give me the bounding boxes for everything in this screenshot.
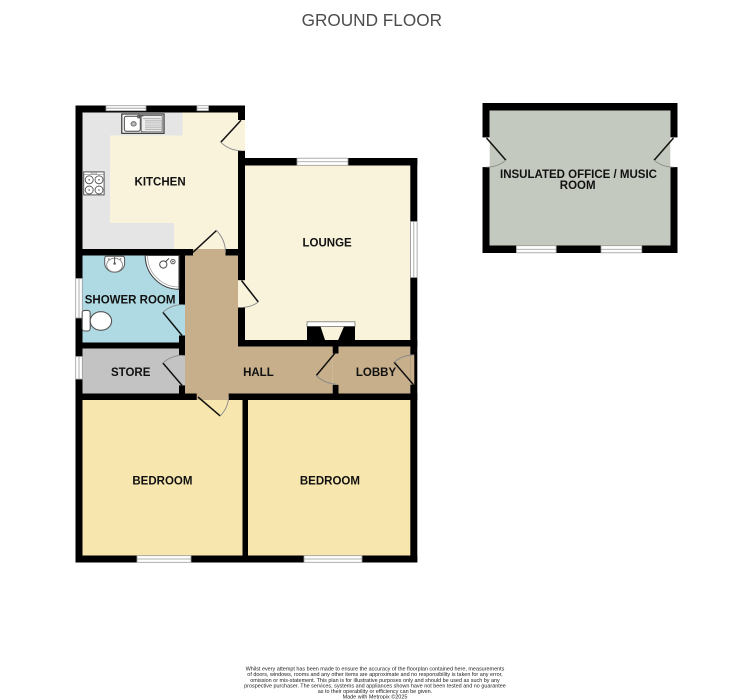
svg-text:ROOM: ROOM (560, 180, 596, 192)
svg-text:BEDROOM: BEDROOM (300, 476, 360, 488)
svg-text:LOUNGE: LOUNGE (302, 238, 352, 250)
svg-text:KITCHEN: KITCHEN (135, 177, 186, 189)
svg-text:GROUND FLOOR: GROUND FLOOR (302, 10, 442, 30)
svg-text:LOBBY: LOBBY (356, 367, 397, 379)
svg-text:SHOWER ROOM: SHOWER ROOM (85, 294, 176, 306)
svg-text:STORE: STORE (111, 367, 151, 379)
svg-text:Made with Metropix ©2025: Made with Metropix ©2025 (343, 694, 408, 699)
svg-text:BEDROOM: BEDROOM (132, 476, 192, 488)
svg-text:HALL: HALL (243, 367, 274, 379)
